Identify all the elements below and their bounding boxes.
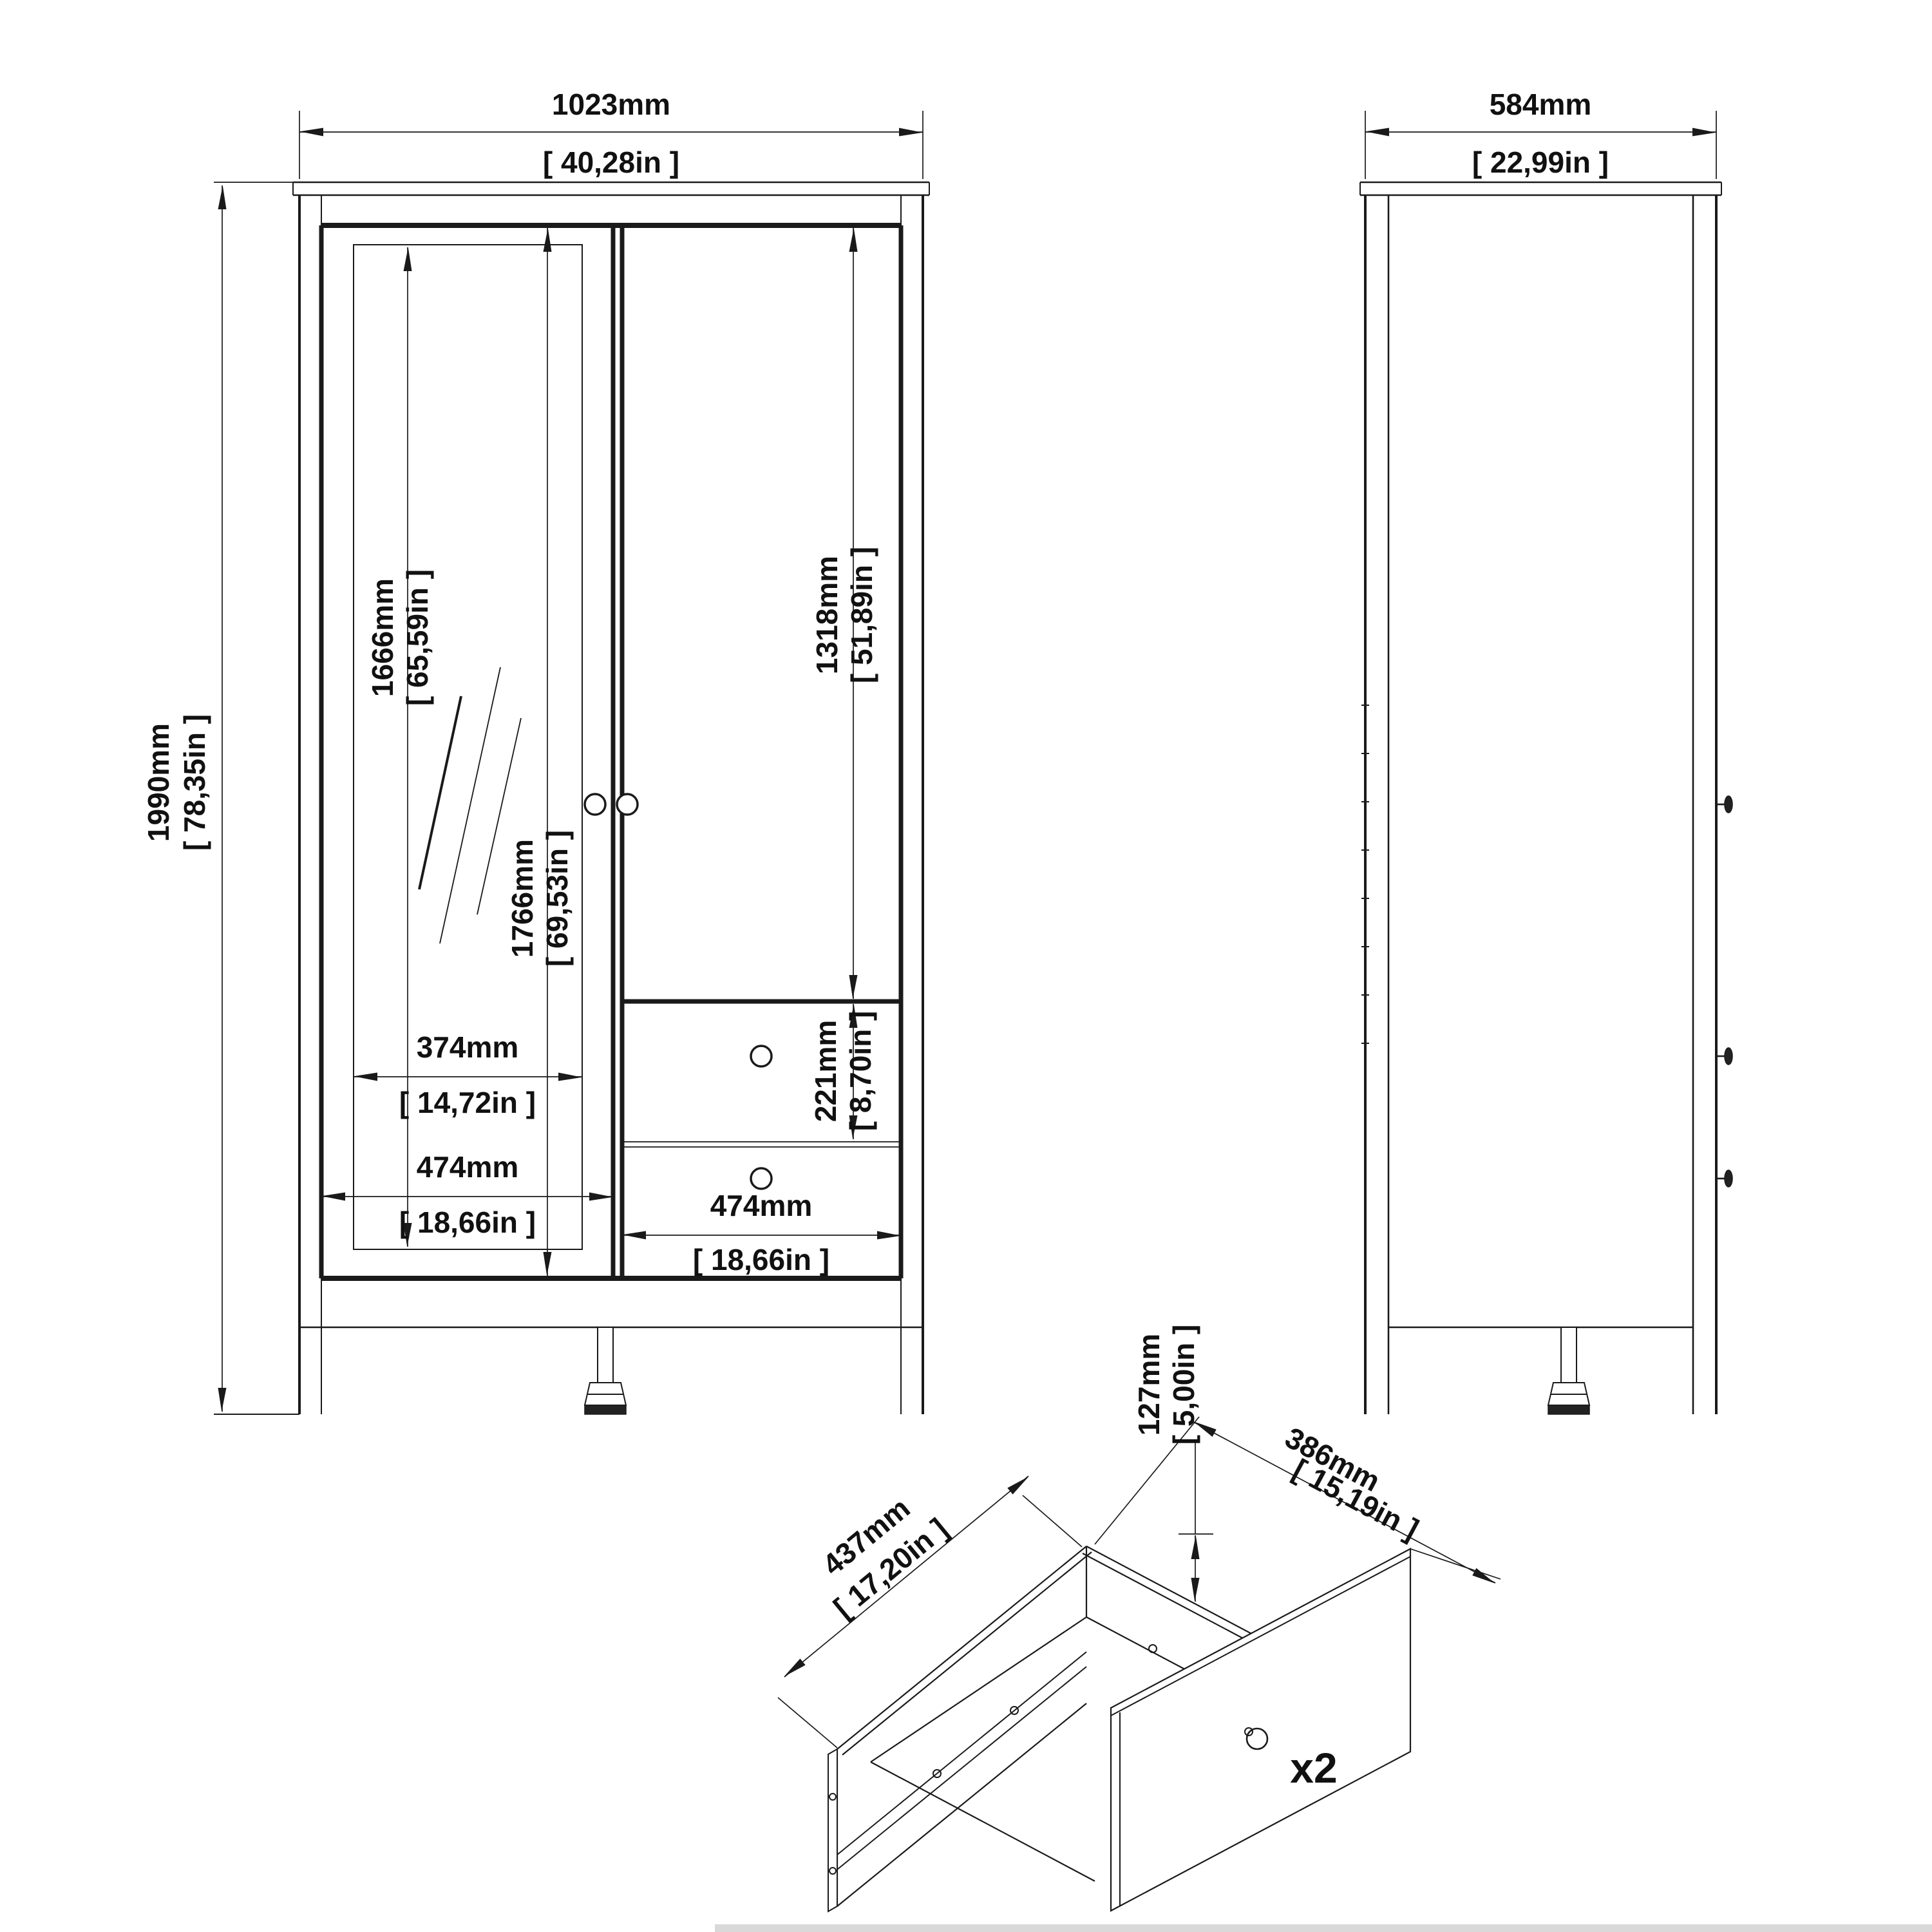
front-leg [585, 1327, 626, 1414]
side-drawer2-knob-profile [1716, 1170, 1732, 1187]
front-leg-foot [585, 1405, 626, 1414]
dim-detail-height: 127mm [ 5,00in ] [1132, 1325, 1213, 1602]
dim-detail-width: 386mm [ 15,19in ] [1095, 1417, 1501, 1583]
dim-front-width: 1023mm [ 40,28in ] [299, 88, 923, 179]
drawer-front-knob [1247, 1728, 1267, 1749]
drawer-quantity-label: x2 [1290, 1744, 1337, 1792]
front-width-in: [ 40,28in ] [543, 146, 679, 179]
left-door-width-mm: 474mm [417, 1150, 519, 1184]
left-door-knob [585, 794, 605, 815]
wardrobe-dimension-drawing: 1023mm [ 40,28in ] 1990mm [ 78,35in ] 16… [0, 0, 1932, 1932]
front-height-mm: 1990mm [142, 723, 175, 842]
side-depth-mm: 584mm [1490, 88, 1592, 121]
detail-height-in: [ 5,00in ] [1167, 1325, 1200, 1445]
side-panels [1365, 195, 1716, 1414]
side-leg-foot [1548, 1405, 1589, 1414]
mirror-height-mm: 1666mm [366, 578, 399, 697]
side-view: 584mm [ 22,99in ] [1360, 88, 1732, 1414]
dim-side-depth: 584mm [ 22,99in ] [1365, 88, 1716, 179]
drawer-width-mm: 474mm [710, 1189, 813, 1222]
drawer-height-mm: 221mm [809, 1020, 842, 1122]
detail-height-mm: 127mm [1132, 1334, 1166, 1436]
side-door-knob-profile [1716, 796, 1732, 813]
door-height-in: [ 69,53in ] [540, 830, 574, 967]
side-depth-in: [ 22,99in ] [1472, 146, 1609, 179]
back-panel-screw-hole [1149, 1645, 1157, 1653]
mirror-width-mm: 374mm [417, 1030, 519, 1064]
bottom-artifact-strip [715, 1924, 1932, 1932]
side-drawer1-knob-profile [1716, 1048, 1732, 1065]
right-door-height-mm: 1318mm [810, 556, 844, 674]
right-door-knob [617, 794, 638, 815]
drawer-height-in: [ 8,70in ] [844, 1011, 877, 1132]
dim-drawer-width: 474mm [ 18,66in ] [622, 1189, 901, 1276]
front-view: 1023mm [ 40,28in ] 1990mm [ 78,35in ] 16… [142, 88, 929, 1414]
drawer-width-in: [ 18,66in ] [693, 1243, 829, 1276]
dim-front-height: 1990mm [ 78,35in ] [142, 182, 293, 1412]
side-leg [1548, 1327, 1589, 1414]
drawer-front-panel [1111, 1549, 1410, 1911]
right-door-height-in: [ 51,89in ] [845, 547, 878, 683]
mirror-height-in: [ 65,59in ] [401, 569, 434, 706]
side-knobs [1716, 796, 1732, 1187]
door-height-mm: 1766mm [506, 839, 539, 958]
dim-right-door-height: 1318mm [ 51,89in ] [810, 228, 878, 999]
dim-drawer-height: 221mm [ 8,70in ] [809, 1004, 877, 1139]
mirror-width-in: [ 14,72in ] [399, 1086, 536, 1119]
drawer1-knob [751, 1046, 772, 1066]
side-top-board [1360, 182, 1721, 195]
drawer-detail: 437mm [ 17,20in ] 386mm [ 15,19in ] 127m… [778, 1325, 1501, 1911]
dim-left-door-width: 474mm [ 18,66in ] [321, 1150, 613, 1239]
drawer2-knob [751, 1168, 772, 1189]
left-door-width-in: [ 18,66in ] [399, 1206, 536, 1239]
front-height-in: [ 78,35in ] [178, 714, 211, 851]
front-width-mm: 1023mm [552, 88, 670, 121]
front-top-board [293, 182, 929, 195]
